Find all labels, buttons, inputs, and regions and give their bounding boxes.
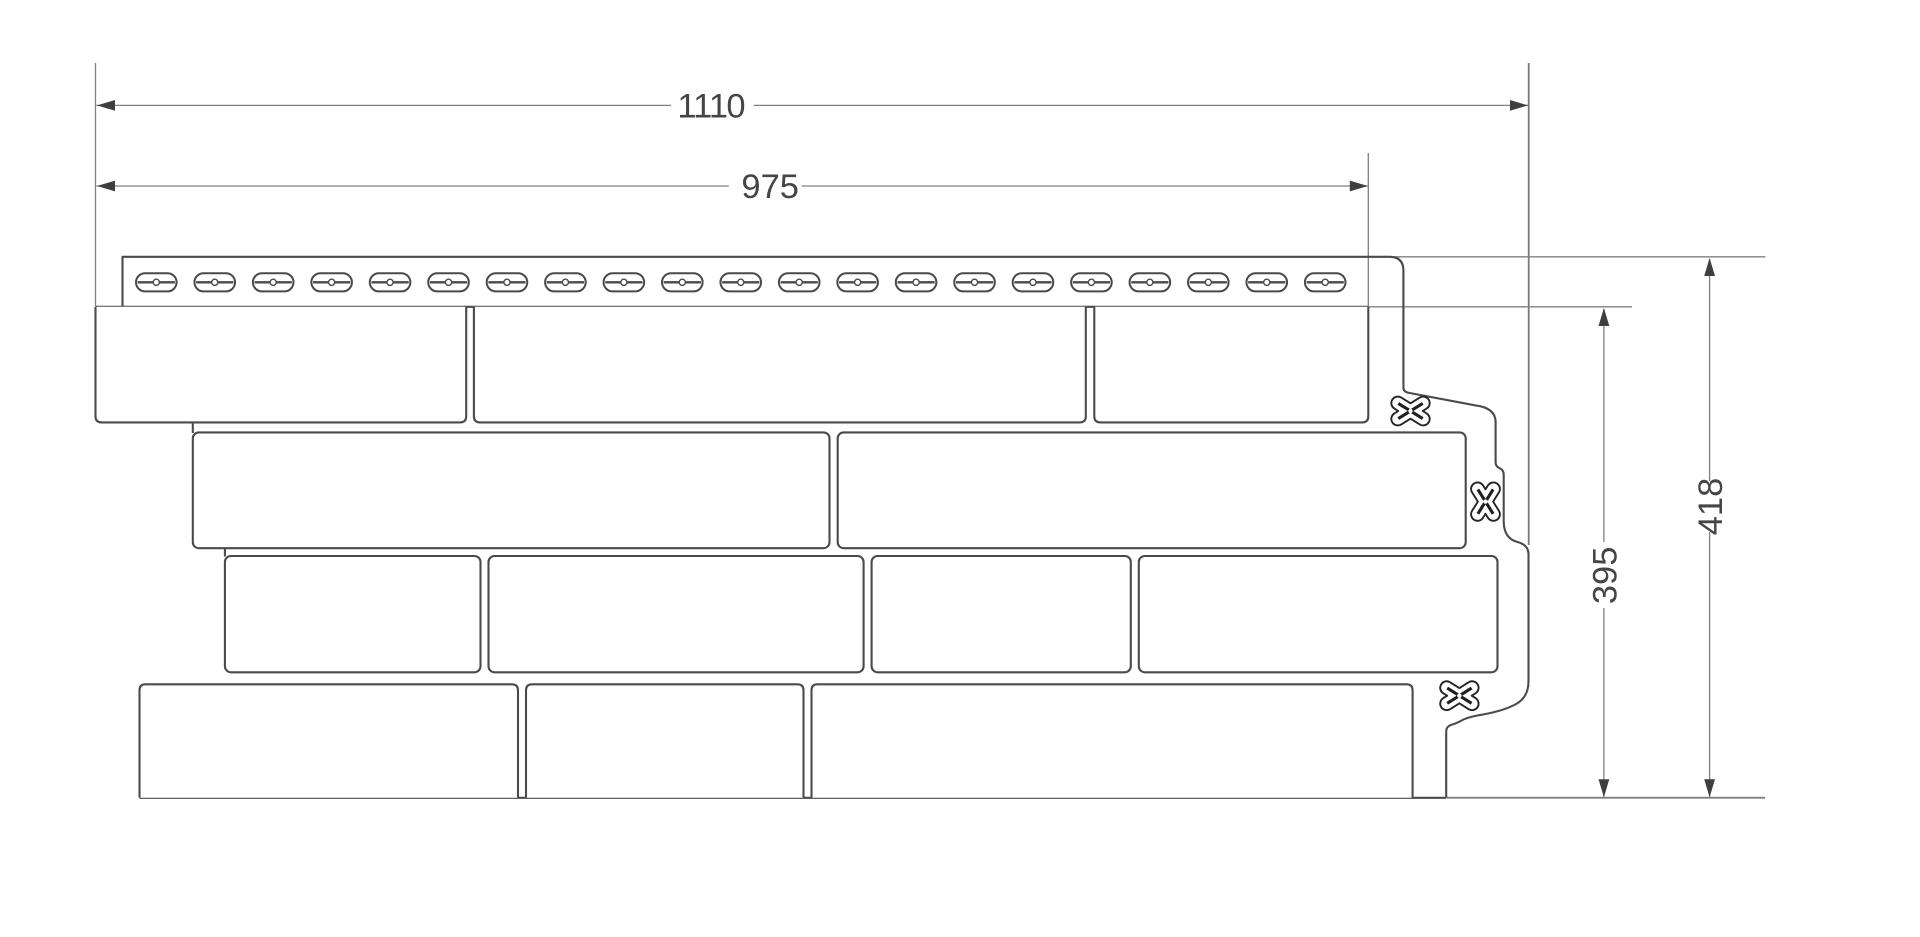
svg-text:395: 395 (1586, 547, 1624, 605)
svg-text:0: 0 (726, 88, 745, 126)
svg-text:1: 1 (709, 88, 728, 126)
svg-text:975: 975 (741, 168, 799, 206)
svg-text:418: 418 (1692, 478, 1730, 536)
